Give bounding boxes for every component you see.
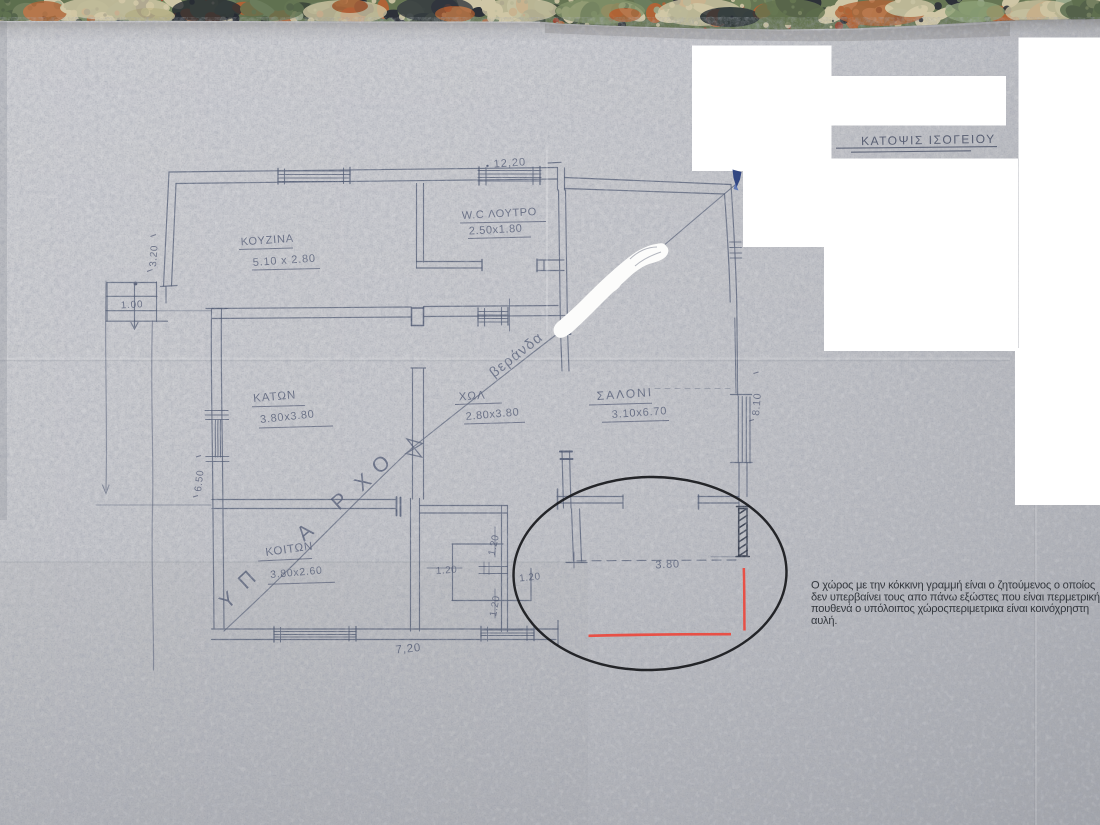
svg-text:ΚΑΤΟΨΙΣ ΙΣΟΓΕΙΟΥ: ΚΑΤΟΨΙΣ ΙΣΟΓΕΙΟΥ [861,132,996,148]
svg-text:Ο χώρος με την κόκκινη γραμμή: Ο χώρος με την κόκκινη γραμμή είναι ο ζη… [811,580,1095,592]
svg-text:αυλή.: αυλή. [811,615,837,627]
svg-text:δεν υπερβαίνει τους απο πάνω ε: δεν υπερβαίνει τους απο πάνω εξώστες που… [811,591,1100,603]
svg-text:πουθενά ο υπόλοιπος χώροςπεριμ: πουθενά ο υπόλοιπος χώροςπεριμετρικα είν… [811,603,1089,615]
